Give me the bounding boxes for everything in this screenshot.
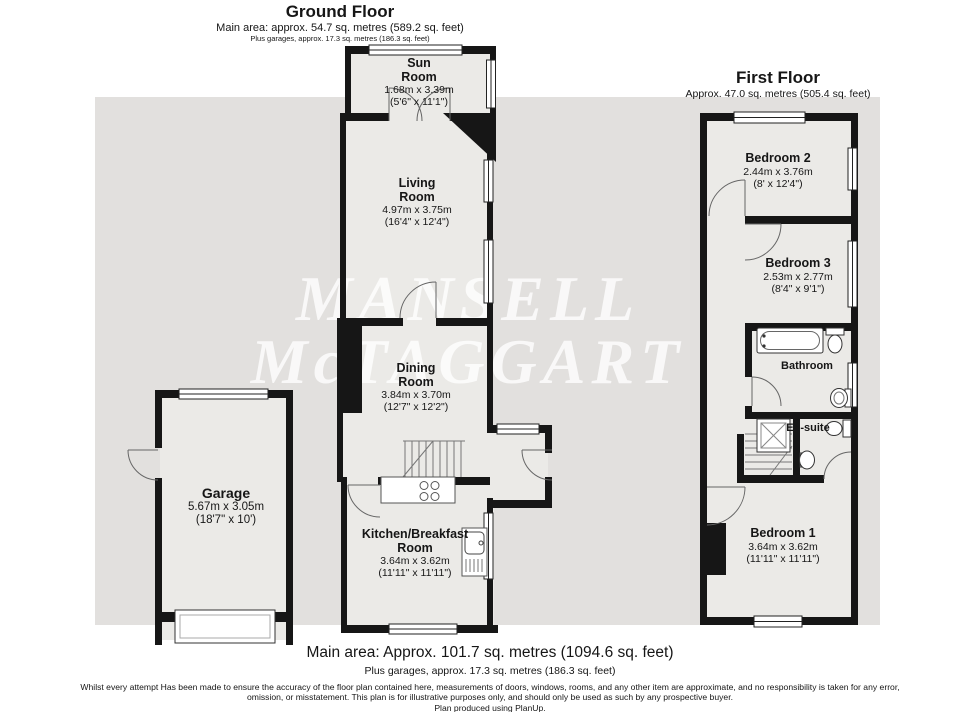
first-floor-title: First Floor	[685, 69, 870, 88]
room-name: Bedroom 3	[763, 257, 832, 271]
room-label-living-room: Living Room 4.97m x 3.75m (16'4" x 12'4"…	[382, 177, 451, 228]
room-dims-imperial: (8' x 12'4")	[743, 178, 812, 190]
room-dims-metric: 5.67m x 3.05m	[188, 501, 264, 514]
room-name: Living Room	[382, 177, 451, 204]
ground-floor-header: Ground Floor Main area: approx. 54.7 sq.…	[216, 3, 464, 43]
ground-floor-garage-note: Plus garages, approx. 17.3 sq. metres (1…	[216, 34, 464, 43]
room-dims-metric: 4.97m x 3.75m	[382, 204, 451, 216]
room-label-bathroom: Bathroom	[781, 361, 833, 373]
room-label-bedroom-2: Bedroom 2 2.44m x 3.76m (8' x 12'4")	[743, 152, 812, 190]
total-area-text: Main area: Approx. 101.7 sq. metres (109…	[80, 644, 900, 662]
garage-area-text: Plus garages, approx. 17.3 sq. metres (1…	[80, 665, 900, 677]
room-dims-metric: 2.53m x 2.77m	[763, 271, 832, 283]
room-dims-metric: 1.68m x 3.39m	[384, 84, 453, 96]
room-label-garage: Garage 5.67m x 3.05m (18'7" x 10')	[188, 486, 264, 528]
room-dims-imperial: (18'7" x 10')	[188, 514, 264, 527]
room-dims-metric: 3.84m x 3.70m	[381, 389, 450, 401]
floorplan-page: MANSELL McTAGGART	[0, 0, 980, 712]
ground-floor-title: Ground Floor	[216, 3, 464, 22]
room-label-bedroom-1: Bedroom 1 3.64m x 3.62m (11'11" x 11'11"…	[746, 527, 819, 565]
room-label-dining-room: Dining Room 3.84m x 3.70m (12'7" x 12'2"…	[381, 362, 450, 413]
room-name: Dining Room	[381, 362, 450, 389]
room-dims-imperial: (11'11" x 11'11")	[746, 553, 819, 565]
room-label-sun-room: Sun Room 1.68m x 3.39m (5'6" x 11'1")	[384, 57, 453, 108]
ground-floor-area: Main area: approx. 54.7 sq. metres (589.…	[216, 22, 464, 34]
disclaimer-text: Whilst every attempt Has been made to en…	[80, 682, 900, 703]
room-dims-imperial: (12'7" x 12'2")	[381, 401, 450, 413]
room-name: En-suite	[786, 423, 829, 435]
room-dims-imperial: (16'4" x 12'4")	[382, 216, 451, 228]
footer: Main area: Approx. 101.7 sq. metres (109…	[80, 644, 900, 712]
room-label-bedroom-3: Bedroom 3 2.53m x 2.77m (8'4" x 9'1")	[763, 257, 832, 295]
room-label-ensuite: En-suite	[786, 423, 829, 435]
produced-by-text: Plan produced using PlanUp.	[80, 703, 900, 712]
room-name: Bathroom	[781, 361, 833, 373]
room-dims-metric: 3.64m x 3.62m	[362, 555, 468, 567]
room-name: Bedroom 2	[743, 152, 812, 166]
room-name: Sun Room	[384, 57, 453, 84]
room-name: Garage	[188, 486, 264, 501]
room-dims-metric: 3.64m x 3.62m	[746, 541, 819, 553]
room-name: Kitchen/Breakfast Room	[362, 528, 468, 555]
first-floor-area: Approx. 47.0 sq. metres (505.4 sq. feet)	[685, 88, 870, 100]
room-dims-metric: 2.44m x 3.76m	[743, 166, 812, 178]
room-dims-imperial: (11'11" x 11'11")	[362, 567, 468, 579]
room-dims-imperial: (5'6" x 11'1")	[384, 96, 453, 108]
room-label-kitchen: Kitchen/Breakfast Room 3.64m x 3.62m (11…	[362, 528, 468, 579]
room-name: Bedroom 1	[746, 527, 819, 541]
first-floor-header: First Floor Approx. 47.0 sq. metres (505…	[685, 69, 870, 100]
room-dims-imperial: (8'4" x 9'1")	[763, 283, 832, 295]
